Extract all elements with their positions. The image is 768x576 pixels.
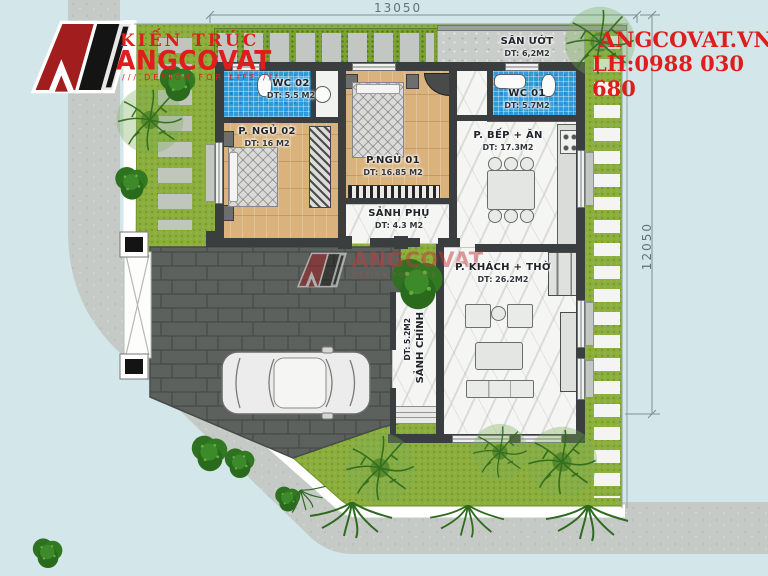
website-text: ANGCOVAT.VN <box>599 27 768 52</box>
bush-icon <box>192 436 228 472</box>
window <box>577 300 585 348</box>
car <box>222 347 370 419</box>
sofa <box>466 380 534 398</box>
wall <box>390 388 396 436</box>
bush-icon <box>275 487 300 512</box>
wall <box>487 66 493 116</box>
corner-column <box>338 236 352 249</box>
wall <box>338 62 346 247</box>
gate-column <box>120 232 148 257</box>
dining-chair <box>488 157 502 171</box>
tree-icon <box>345 433 415 503</box>
bathtub-sink <box>494 74 526 89</box>
hotline-text: LH:0988 030 680 <box>592 51 768 101</box>
window <box>577 358 585 400</box>
tree-roots <box>310 502 392 538</box>
window <box>577 150 585 208</box>
room-area-sanh-chinh: DT: 5.2M2 <box>403 318 412 361</box>
gate <box>124 252 151 358</box>
entry-steps <box>392 406 440 424</box>
wall <box>449 62 457 247</box>
window <box>520 435 562 443</box>
room-label-khach-tho: P. KHÁCH + THỜDT: 26.2M2 <box>455 262 551 285</box>
dining-chair <box>504 157 518 171</box>
window-sill <box>205 144 215 202</box>
dimension-width: 13050 <box>374 1 422 15</box>
room-label-wc01: WC 01DT: 5.7M2 <box>504 88 549 111</box>
armchair <box>465 304 491 328</box>
room-label-sanh-chinh: SẢNH CHÍNH <box>415 312 426 383</box>
wall <box>455 115 582 121</box>
window <box>352 63 396 71</box>
window <box>452 435 510 443</box>
dining-chair <box>520 209 534 223</box>
gate-leaf-lines <box>126 255 149 355</box>
bush-icon <box>225 448 255 478</box>
wardrobe-cabinet <box>348 185 440 199</box>
dining-table <box>487 170 535 210</box>
armchair <box>507 304 533 328</box>
tree-roots <box>278 478 331 521</box>
side-table <box>491 306 506 321</box>
room-label-san-uot: SÂN ƯỚTDT: 6,2M2 <box>501 36 554 59</box>
wall <box>343 198 455 204</box>
gate-column <box>120 354 148 379</box>
room-label-bep-an: P. BẾP + ĂNDT: 17.3M2 <box>473 130 542 153</box>
coffee-table <box>475 342 523 370</box>
corner-column <box>206 231 224 247</box>
bush-icon <box>33 538 63 568</box>
window <box>215 142 223 204</box>
nightstand <box>406 74 419 89</box>
tree-roots <box>546 505 628 541</box>
right-stepping-stones <box>594 36 620 498</box>
tree-roots <box>430 505 504 537</box>
room-label-sanh-phu: SẢNH PHỤDT: 4.3 M2 <box>368 208 429 231</box>
logo-angcovat: ANGCOVAT <box>116 45 272 75</box>
logo-tagline: /// DESIGN FOR LIFE /// <box>122 73 280 82</box>
window <box>505 63 539 71</box>
bed-pillow <box>229 152 238 202</box>
wall <box>390 292 396 350</box>
dining-chair <box>504 209 518 223</box>
dining-chair <box>488 209 502 223</box>
dimension-height: 12050 <box>640 222 654 270</box>
tagline-slashes: /// <box>122 73 139 82</box>
watermark-emblem-icon <box>296 250 348 290</box>
window-sill <box>585 152 594 206</box>
wall <box>217 117 343 123</box>
bed-pillow <box>356 84 400 94</box>
tagline-slashes: /// <box>263 73 280 82</box>
room-label-p-ngu-02: P. NGỦ 02DT: 16 M2 <box>238 126 296 149</box>
window-sill <box>585 360 594 398</box>
site-plan-canvas: ANGCOVAT DESIGN FOR LIFE SÂN ƯỚTDT: 6,2M… <box>0 0 768 576</box>
room-label-p-ngu-01: P.NGỦ 01DT: 16.85 M2 <box>363 155 422 178</box>
dining-chair <box>520 157 534 171</box>
sink <box>314 86 331 103</box>
wall <box>215 238 352 247</box>
bush-icon <box>115 167 148 200</box>
window-sill <box>585 302 594 346</box>
wardrobe <box>309 126 331 208</box>
